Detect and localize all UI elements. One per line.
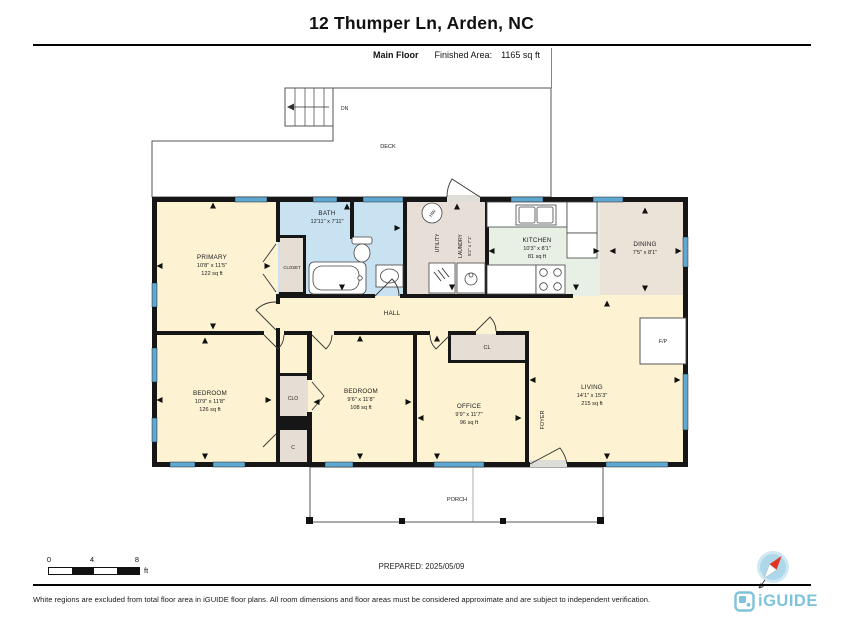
svg-text:96 sq ft: 96 sq ft [460, 420, 479, 426]
toilet [352, 237, 372, 244]
svg-text:9'6" x 11'8": 9'6" x 11'8" [347, 397, 374, 403]
stove [536, 265, 565, 294]
iguide-logo: iGUIDE [734, 591, 818, 612]
svg-text:14'1" x 15'3": 14'1" x 15'3" [577, 393, 608, 399]
cl-label: CL [483, 345, 490, 351]
c-closet-label: C [291, 445, 295, 451]
svg-text:9'9" x 11'7": 9'9" x 11'7" [455, 412, 482, 418]
svg-text:122 sq ft: 122 sq ft [201, 271, 223, 277]
svg-text:126 sq ft: 126 sq ft [199, 407, 221, 413]
clo-label: CLO [288, 396, 298, 402]
svg-text:5'2" x 7'1": 5'2" x 7'1" [467, 236, 472, 256]
kitchen-label: KITCHEN [522, 237, 551, 244]
svg-text:12'11" x 7'11": 12'11" x 7'11" [311, 219, 344, 225]
utility-label: UTILITY [435, 233, 441, 252]
dining-label: DINING [633, 241, 656, 248]
porch-label: PORCH [447, 497, 467, 503]
svg-text:10'8" x 11'5": 10'8" x 11'5" [197, 263, 227, 269]
svg-text:81 sq ft: 81 sq ft [528, 254, 547, 260]
primary-label: PRIMARY [197, 254, 228, 261]
floor-plan: DN DECK PORCH [0, 0, 843, 632]
svg-text:10'9" x 11'8": 10'9" x 11'8" [195, 399, 225, 405]
disclaimer-text: White regions are excluded from total fl… [33, 595, 733, 604]
deck-label: DECK [380, 144, 396, 150]
bath-label: BATH [318, 210, 335, 217]
compass-icon [750, 547, 796, 593]
prepared-date: PREPARED: 2025/05/09 [0, 562, 843, 571]
svg-text:10'3" x 8'1": 10'3" x 8'1" [523, 246, 551, 252]
svg-text:215 sq ft: 215 sq ft [581, 401, 603, 407]
svg-text:7'5" x 8'1": 7'5" x 8'1" [633, 250, 657, 256]
fridge [567, 202, 597, 233]
foyer-label: FOYER [540, 411, 546, 430]
stairs-dn-label: DN [341, 106, 349, 112]
floor-plan-page: 12 Thumper Ln, Arden, NC Main FloorFinis… [0, 0, 843, 632]
hall-label: HALL [384, 310, 401, 317]
footer-divider [33, 584, 811, 586]
fireplace-label: F/P [659, 339, 668, 345]
svg-text:108 sq ft: 108 sq ft [350, 405, 372, 411]
iguide-logo-icon [734, 591, 755, 612]
bedroom1-label: BEDROOM [193, 390, 227, 397]
living-label: LIVING [581, 384, 603, 391]
deck: DN DECK [152, 48, 552, 197]
iguide-logo-text: iGUIDE [758, 592, 818, 611]
laundry-label: LAUNDRY [458, 233, 464, 257]
bedroom2-label: BEDROOM [344, 388, 378, 395]
closet-label: CLOSET [283, 265, 301, 270]
office-label: OFFICE [457, 403, 481, 410]
porch: PORCH [306, 467, 604, 524]
